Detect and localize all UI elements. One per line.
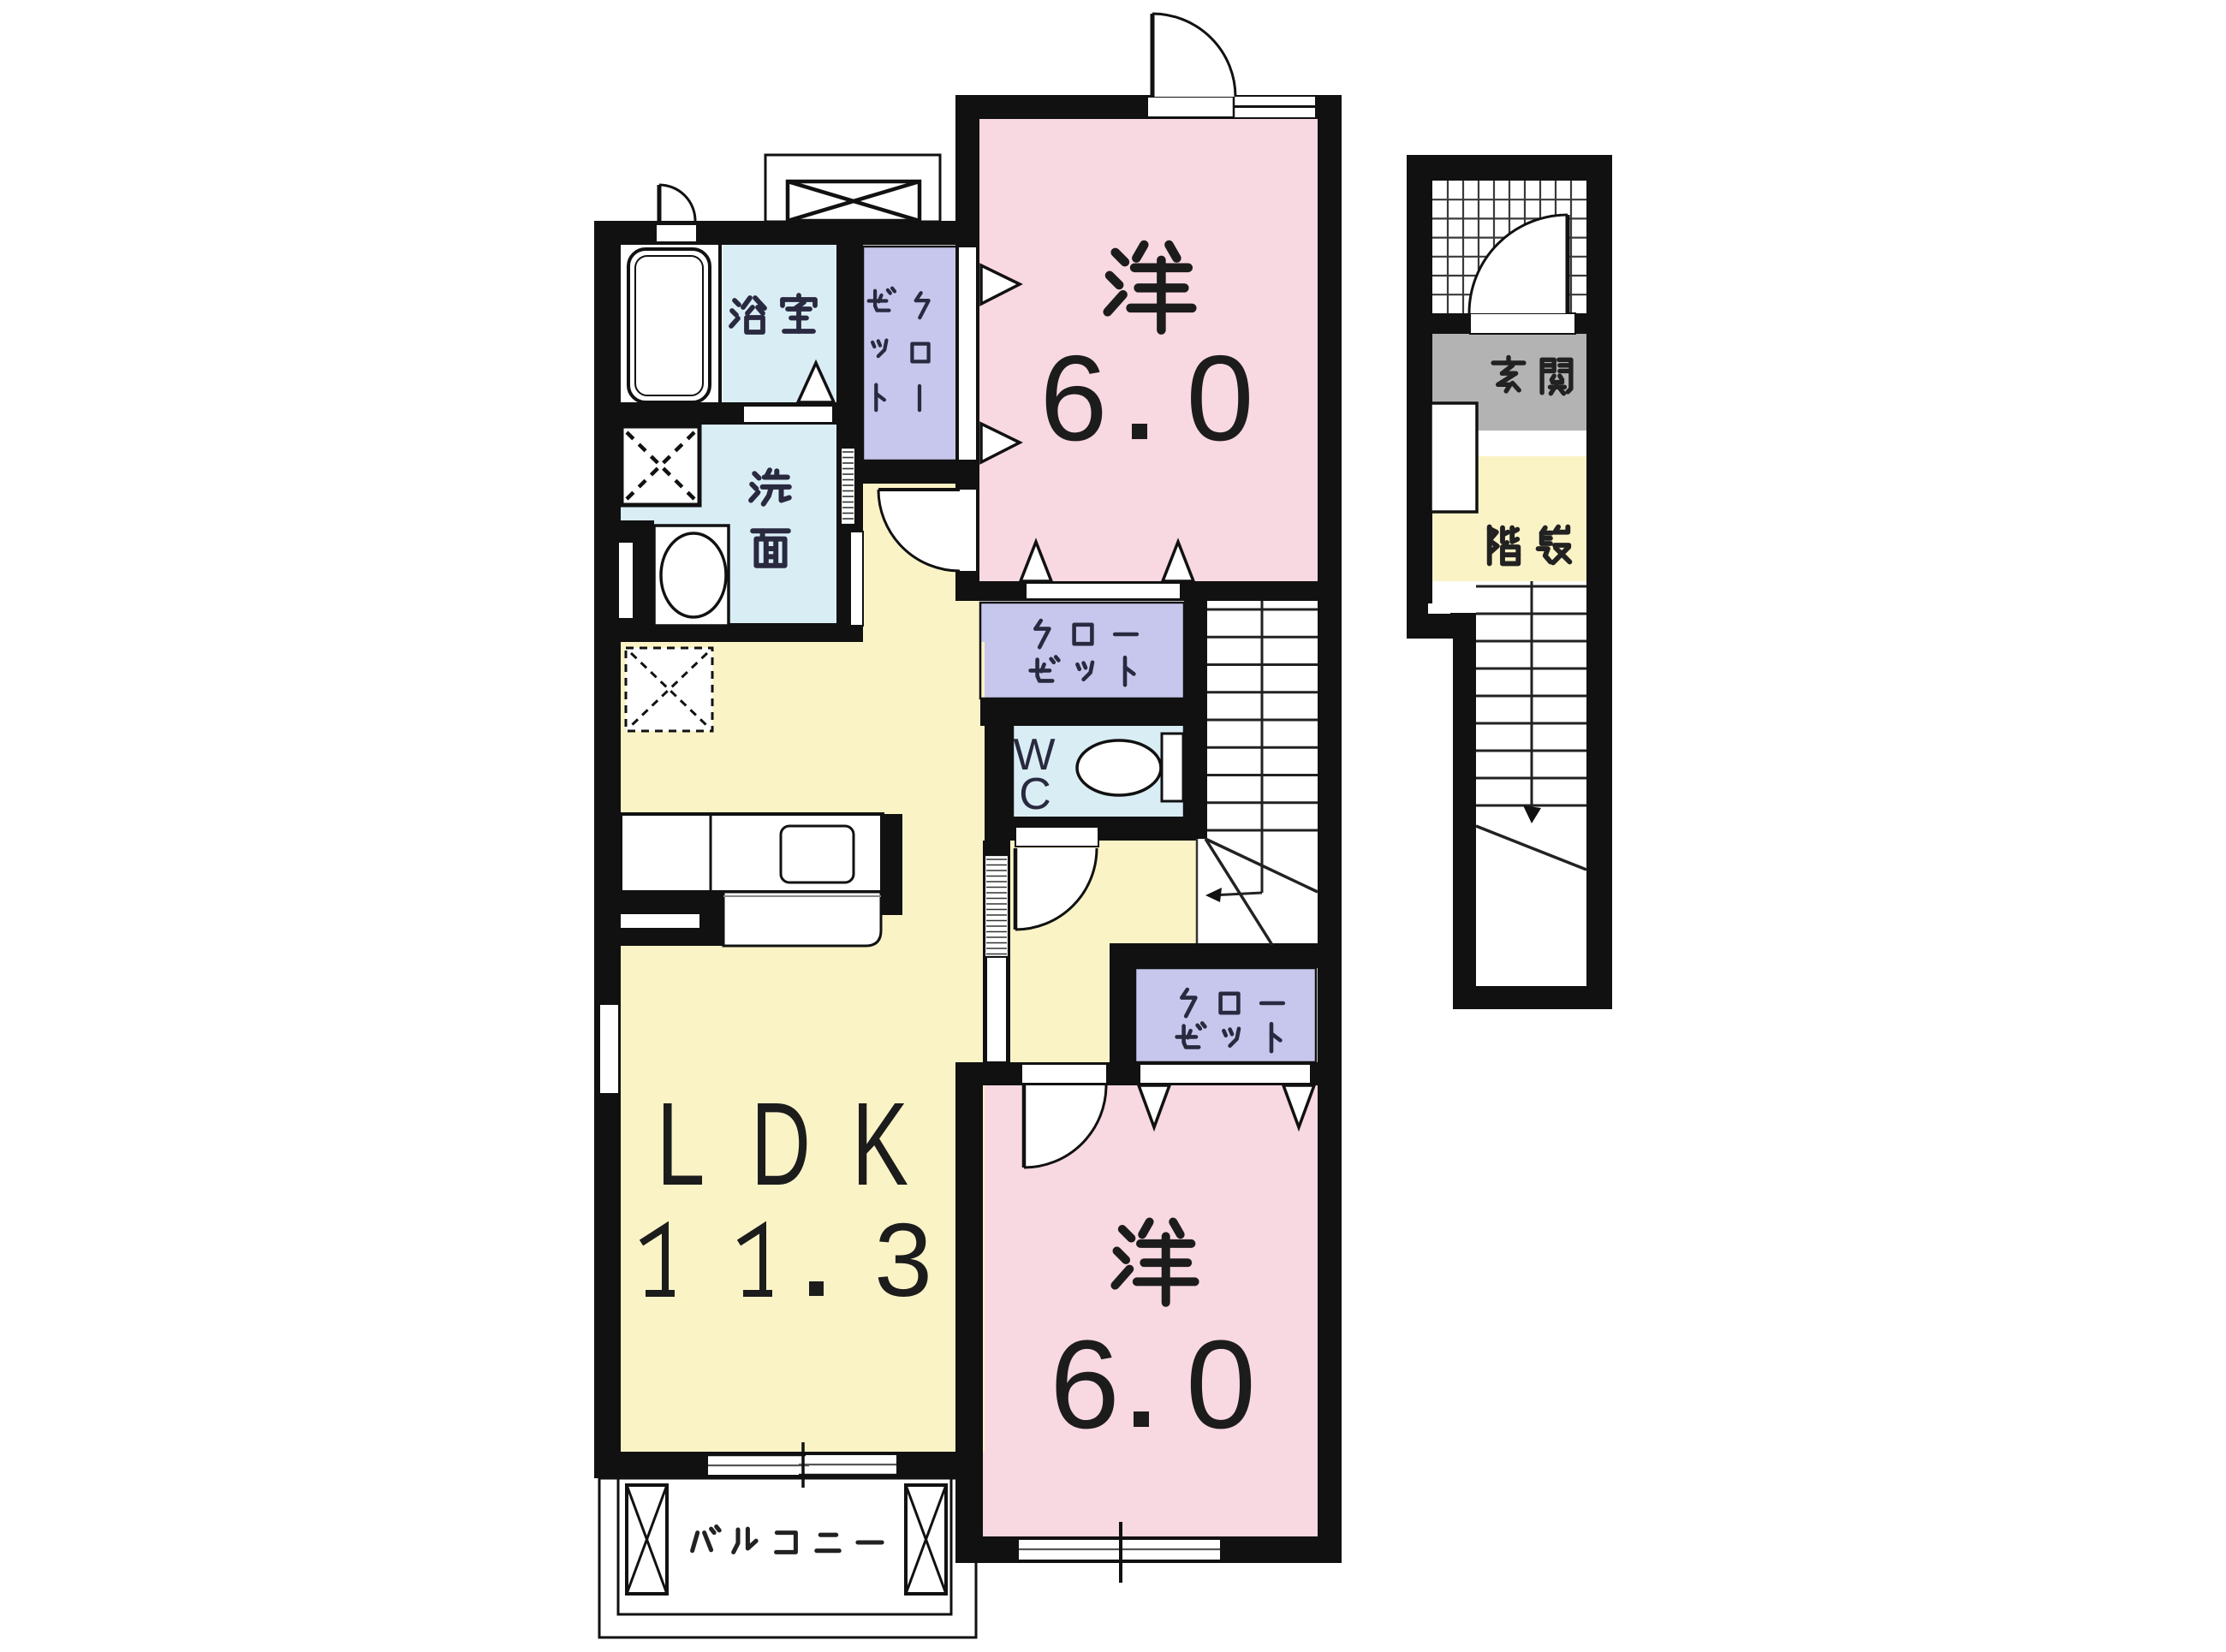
svg-text:6: 6 — [1040, 330, 1108, 466]
svg-text:K: K — [852, 1079, 908, 1210]
svg-text:L: L — [657, 1078, 705, 1210]
svg-text:0: 0 — [1186, 1315, 1256, 1455]
svg-text:C: C — [1019, 770, 1051, 819]
svg-text:3: 3 — [874, 1202, 932, 1318]
svg-text:6: 6 — [1050, 1315, 1120, 1455]
svg-text:0: 0 — [1187, 330, 1254, 466]
svg-text:D: D — [751, 1079, 811, 1210]
